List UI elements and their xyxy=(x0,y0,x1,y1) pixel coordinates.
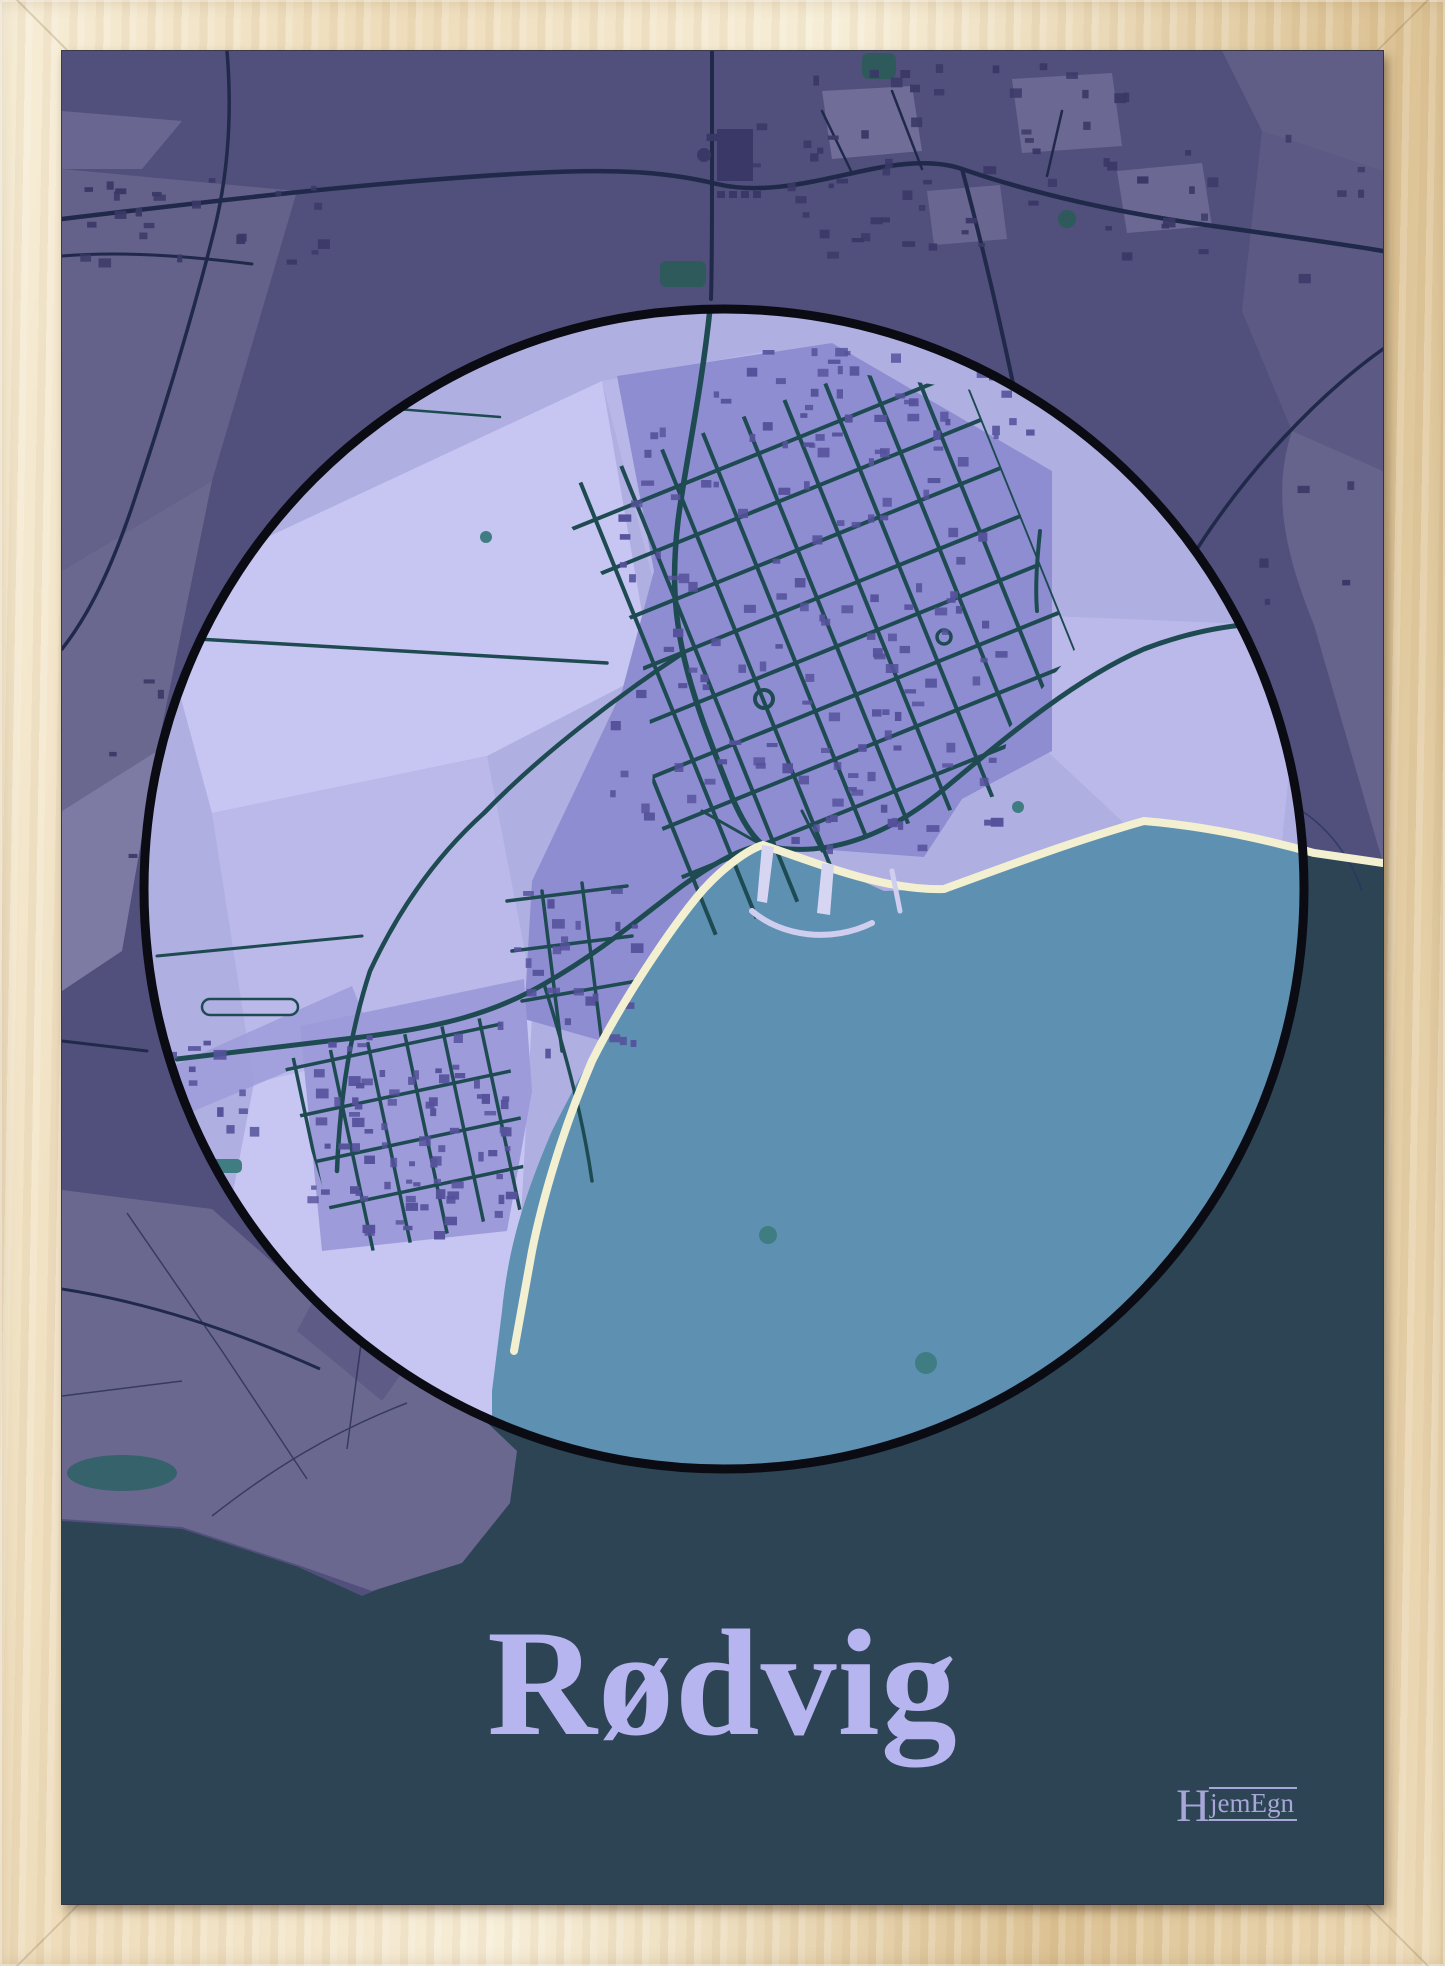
brand-logo-initial: H xyxy=(1176,1787,1210,1826)
framed-map-poster: Rødvig H jemEgn xyxy=(0,0,1445,1966)
headland-lake xyxy=(67,1455,177,1491)
frame-miter-joint xyxy=(3,1894,89,1966)
map-poster: Rødvig H jemEgn xyxy=(62,51,1383,1904)
brand-logo: H jemEgn xyxy=(1176,1787,1297,1826)
brand-logo-text: jemEgn xyxy=(1209,1787,1297,1821)
frame-miter-joint xyxy=(1356,1894,1442,1966)
town-name-title: Rødvig xyxy=(62,1607,1383,1759)
